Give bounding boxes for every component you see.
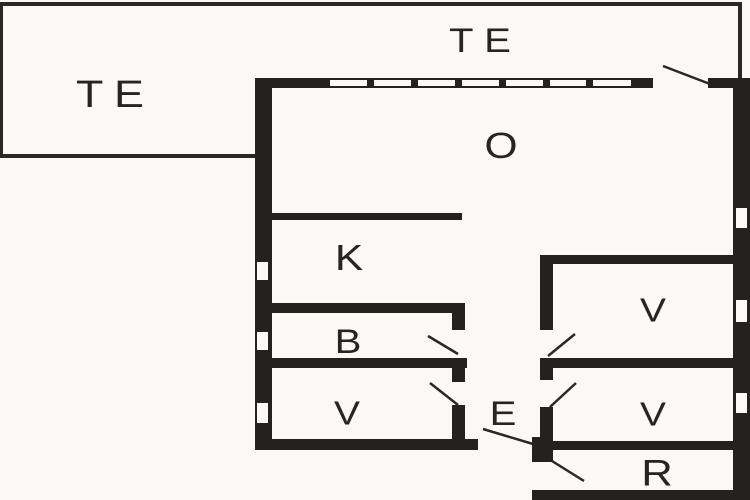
- floor-plan-canvas: TE TE O K B V E V V R: [0, 0, 750, 500]
- room-label-living-room: O: [484, 128, 517, 164]
- room-label-bedroom-mid-right: V: [640, 398, 666, 431]
- storage-door-swing-line: [552, 461, 584, 481]
- room-label-kitchen: K: [335, 240, 363, 276]
- room-label-bedroom-top-right: V: [640, 294, 666, 327]
- bathroom-door-swing-line: [428, 336, 458, 354]
- room-label-terrace-left: TE: [65, 76, 154, 114]
- bedroom-top-right-door-swing-line: [548, 334, 575, 356]
- room-label-entrance: E: [490, 397, 517, 431]
- room-label-storage: R: [641, 455, 673, 492]
- bedroom-mid-right-door-swing-line: [550, 383, 576, 407]
- room-label-bedroom-left: V: [334, 397, 360, 430]
- bedroom-left-door-swing-line: [430, 383, 458, 405]
- room-label-bathroom: B: [335, 325, 362, 359]
- terrace-door-swing-line: [663, 66, 710, 84]
- room-label-terrace-top: TE: [438, 24, 521, 58]
